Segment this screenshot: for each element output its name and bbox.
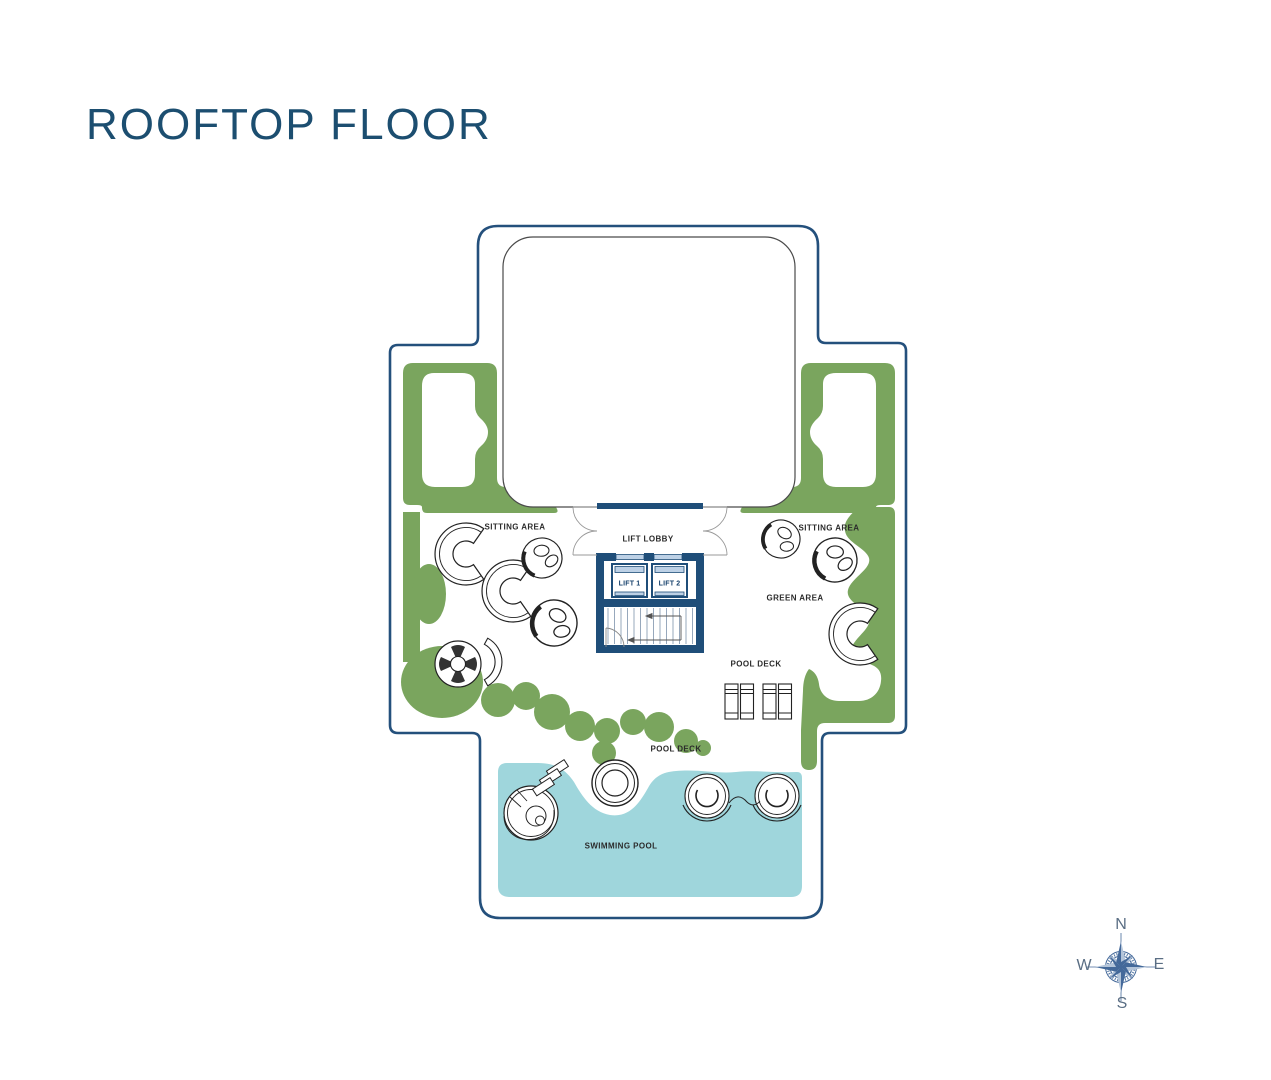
- fire-pit-side-arc: [484, 638, 502, 686]
- lobby-doors: [573, 507, 727, 555]
- lift1-rear-strip: [615, 592, 644, 596]
- label-sitting-area-right: SITTING AREA: [799, 524, 860, 533]
- core-wall-top-seg: [682, 553, 704, 561]
- label-sitting-area-left: SITTING AREA: [485, 523, 546, 532]
- green-blob: [534, 694, 570, 730]
- core-wall-bottom: [596, 645, 704, 653]
- compass-east-label: E: [1154, 956, 1165, 974]
- compass-west-label: W: [1076, 957, 1091, 975]
- staircase: [608, 608, 693, 644]
- round-table: [758, 516, 805, 563]
- core-wall-top-seg: [596, 553, 616, 561]
- sun-lounger: [741, 684, 754, 719]
- compass-points-dark: [1095, 941, 1147, 993]
- lift2-rear-strip: [655, 592, 684, 596]
- label-lift-lobby: LIFT LOBBY: [622, 535, 673, 544]
- core-wall-mid: [596, 599, 704, 607]
- label-swimming-pool: SWIMMING POOL: [585, 842, 658, 851]
- green-blob: [481, 683, 515, 717]
- label-lift-2: LIFT 2: [659, 581, 681, 588]
- compass-rose: [1083, 929, 1159, 1005]
- sun-lounger: [763, 684, 776, 719]
- lift2-door-strip: [655, 567, 684, 573]
- fire-pit-seating: [435, 641, 481, 687]
- deck-round-table: [592, 760, 638, 806]
- label-pool-deck-lower: POOL DECK: [650, 745, 701, 754]
- round-table: [527, 596, 580, 649]
- lobby-door-left: [573, 507, 597, 555]
- green-blob: [594, 718, 620, 744]
- lift-door-sill: [654, 555, 682, 560]
- lobby-door-right: [703, 507, 727, 555]
- crescent-bench: [482, 560, 531, 622]
- compass-north-label: N: [1115, 916, 1127, 934]
- upper-structure-outline: [503, 237, 795, 507]
- label-lift-1: LIFT 1: [619, 581, 641, 588]
- compass-south-label: S: [1117, 995, 1128, 1013]
- lift1-door-strip: [615, 567, 644, 573]
- lift-door-sill: [616, 555, 644, 560]
- green-blob: [644, 712, 674, 742]
- jacuzzi: [504, 786, 558, 840]
- green-blob: [565, 711, 595, 741]
- label-pool-deck-upper: POOL DECK: [730, 660, 781, 669]
- green-blob: [620, 709, 646, 735]
- sun-lounger: [725, 684, 738, 719]
- label-green-area: GREEN AREA: [766, 594, 823, 603]
- sun-lounger: [779, 684, 792, 719]
- floor-plan: SITTING AREA SITTING AREA LIFT LOBBY GRE…: [0, 0, 1271, 1080]
- core-wall-top-seg: [644, 553, 654, 561]
- pool-deck-loungers: [725, 684, 792, 719]
- lobby-wall: [597, 503, 703, 509]
